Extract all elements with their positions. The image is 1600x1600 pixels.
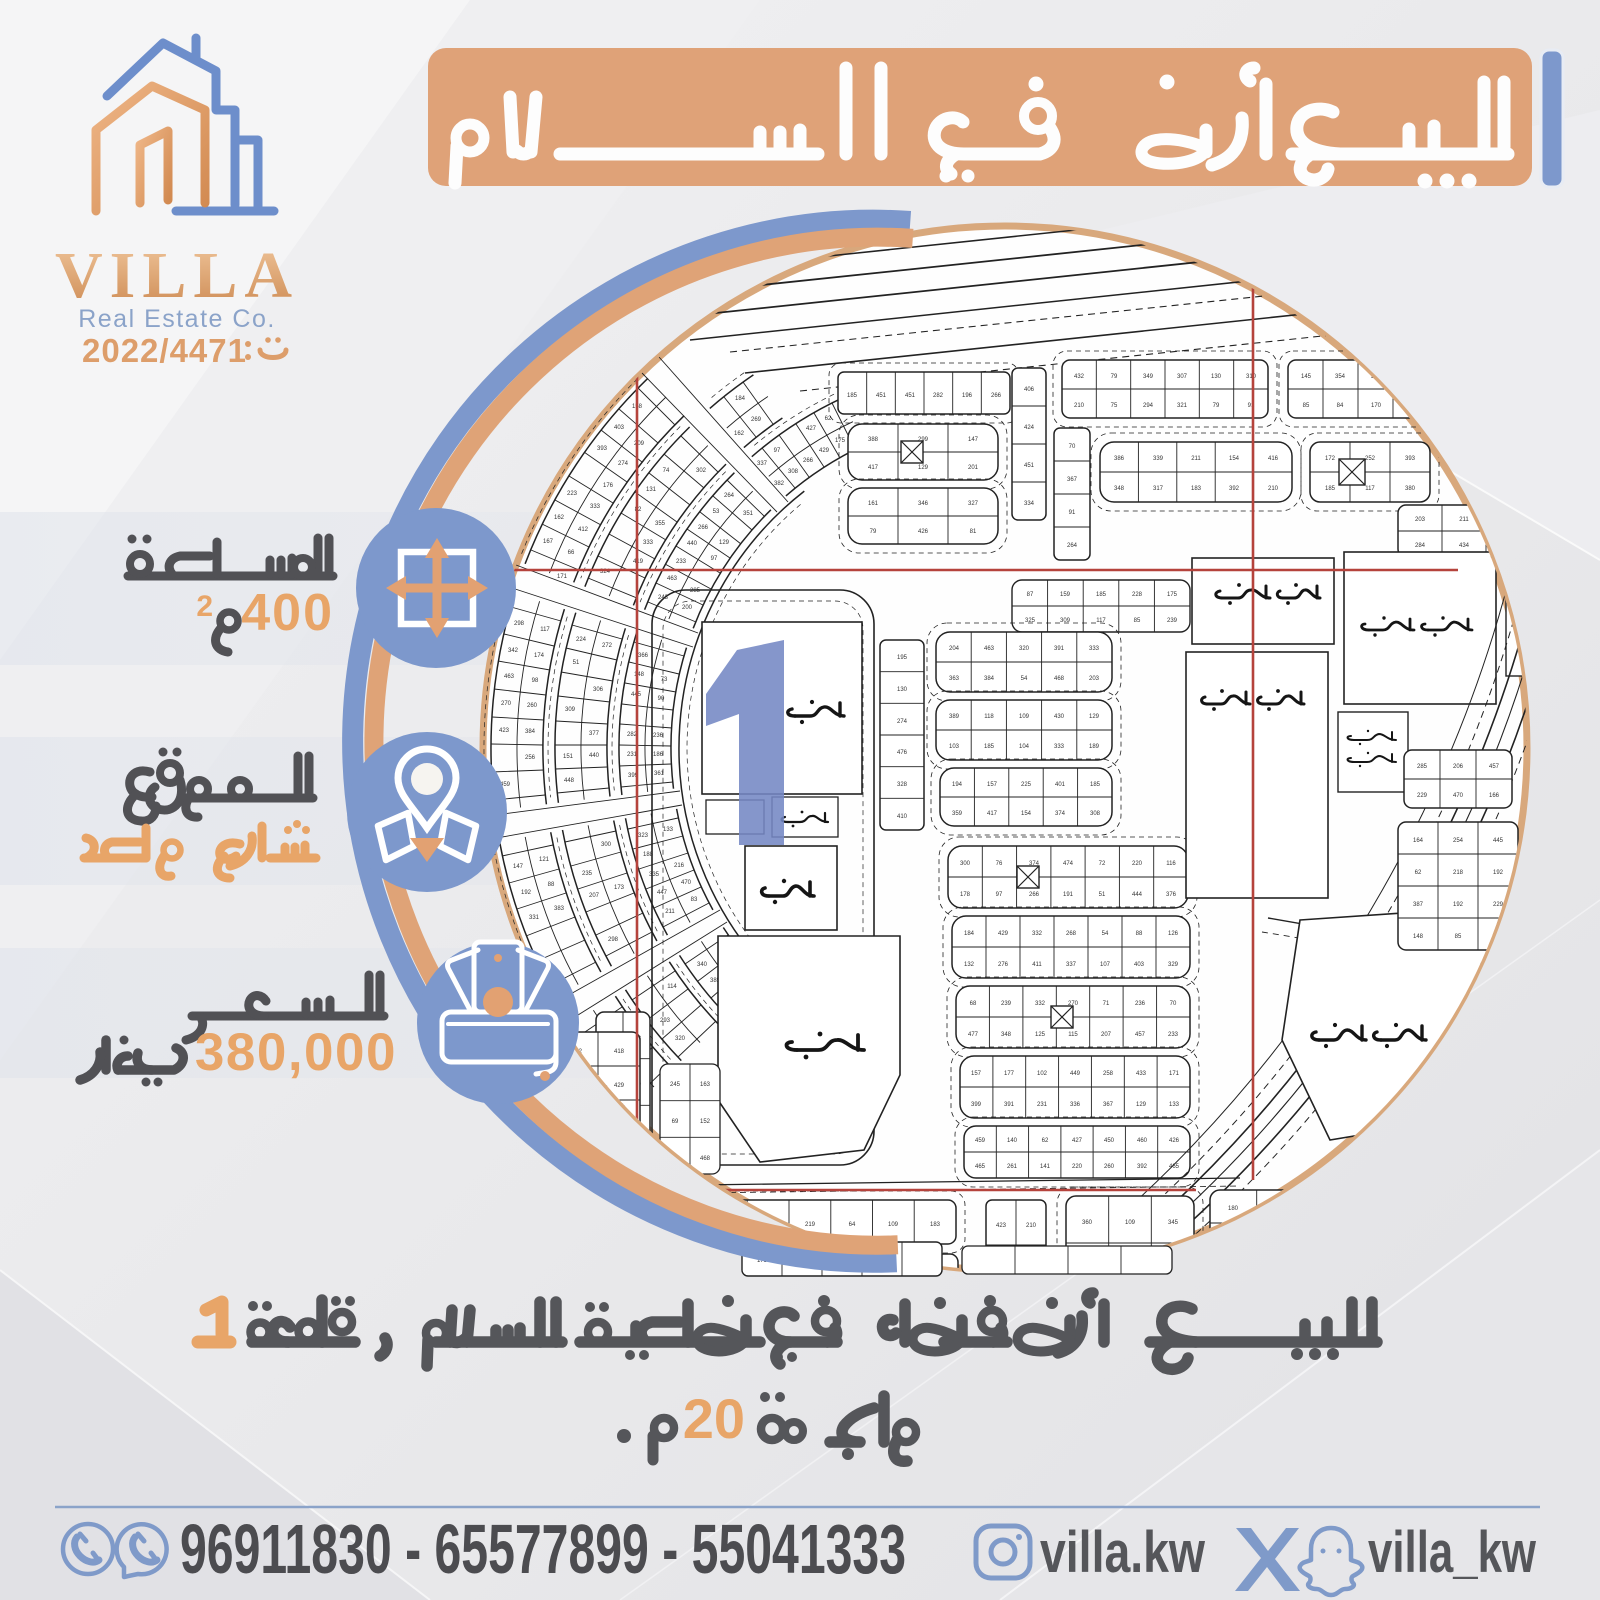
svg-text:423: 423 [499, 728, 510, 734]
svg-text:68: 68 [970, 1001, 977, 1007]
svg-text:235: 235 [582, 871, 593, 877]
svg-text:393: 393 [1405, 456, 1416, 462]
svg-text:218: 218 [1453, 870, 1464, 876]
svg-text:298: 298 [514, 621, 525, 627]
svg-text:225: 225 [1021, 782, 1032, 788]
svg-text:Real Estate Co.: Real Estate Co. [78, 305, 276, 333]
svg-text:256: 256 [525, 755, 536, 761]
svg-text:427: 427 [806, 426, 817, 432]
svg-text:307: 307 [1177, 374, 1188, 380]
svg-text:333: 333 [590, 504, 601, 510]
svg-text:387: 387 [1413, 902, 1424, 908]
svg-text:239: 239 [1001, 1001, 1012, 1007]
svg-text:411: 411 [1032, 962, 1042, 968]
svg-text:170: 170 [1371, 403, 1382, 409]
svg-text:332: 332 [1035, 1001, 1046, 1007]
svg-text:306: 306 [593, 687, 604, 693]
svg-text:426: 426 [1169, 1138, 1180, 1144]
svg-text:308: 308 [1090, 811, 1101, 817]
svg-text:192: 192 [1493, 870, 1504, 876]
svg-text:328: 328 [897, 782, 908, 788]
svg-text:419: 419 [633, 559, 644, 565]
svg-text:97: 97 [996, 892, 1003, 898]
svg-text:184: 184 [964, 931, 975, 937]
svg-text:186: 186 [653, 752, 664, 758]
svg-text:129: 129 [1136, 1102, 1147, 1108]
svg-text:210: 210 [1074, 403, 1085, 409]
svg-text:293: 293 [660, 1018, 671, 1024]
svg-text:236: 236 [653, 733, 664, 739]
svg-text:333: 333 [643, 540, 654, 546]
svg-text:274: 274 [897, 719, 908, 725]
svg-text:354: 354 [1335, 374, 1346, 380]
svg-text:470: 470 [1453, 793, 1464, 799]
svg-text:445: 445 [1493, 838, 1504, 844]
svg-text:383: 383 [554, 906, 565, 912]
svg-text:403: 403 [1134, 962, 1145, 968]
svg-text:VILLA: VILLA [55, 239, 299, 312]
svg-text:176: 176 [603, 483, 614, 489]
svg-text:194: 194 [952, 782, 963, 788]
svg-text:210: 210 [1026, 1223, 1037, 1229]
svg-text:96911830 - 65577899 - 55041333: 96911830 - 65577899 - 55041333 [180, 1510, 906, 1588]
svg-text:162: 162 [554, 515, 565, 521]
svg-text:460: 460 [1137, 1138, 1148, 1144]
svg-text:98: 98 [532, 678, 539, 684]
svg-text:196: 196 [962, 393, 973, 399]
svg-text:109: 109 [1125, 1220, 1136, 1226]
svg-text:339: 339 [1153, 456, 1164, 462]
svg-text:274: 274 [618, 461, 629, 467]
svg-text:239: 239 [1167, 618, 1178, 624]
svg-text:457: 457 [1489, 764, 1500, 770]
svg-text:266: 266 [803, 458, 814, 464]
svg-text:429: 429 [998, 931, 1009, 937]
svg-text:183: 183 [1191, 486, 1202, 492]
svg-text:51: 51 [1099, 892, 1106, 898]
svg-text:285: 285 [1417, 764, 1428, 770]
svg-text:233: 233 [1168, 1032, 1179, 1038]
svg-text:70: 70 [1069, 444, 1076, 450]
svg-text:219: 219 [805, 1222, 816, 1228]
svg-text:75: 75 [1111, 403, 1118, 409]
svg-text:148: 148 [634, 672, 645, 678]
svg-text:180: 180 [1228, 1206, 1239, 1212]
svg-text:200: 200 [682, 605, 693, 611]
svg-text:266: 266 [698, 525, 709, 531]
svg-text:203: 203 [1415, 517, 1426, 523]
svg-text:201: 201 [968, 465, 979, 471]
svg-text:294: 294 [1143, 403, 1154, 409]
svg-text:192: 192 [521, 890, 532, 896]
svg-text:380: 380 [1405, 486, 1416, 492]
svg-text:211: 211 [1191, 456, 1201, 462]
svg-text:391: 391 [1054, 646, 1065, 652]
svg-text:285: 285 [690, 588, 701, 594]
svg-text:270: 270 [501, 701, 512, 707]
svg-text:109: 109 [888, 1222, 899, 1228]
svg-text:272: 272 [602, 643, 613, 649]
svg-text:392: 392 [1137, 1164, 1148, 1170]
svg-text:351: 351 [743, 511, 754, 517]
svg-text:157: 157 [971, 1071, 982, 1077]
svg-text:463: 463 [504, 674, 515, 680]
svg-text:229: 229 [1493, 902, 1504, 908]
svg-text:118: 118 [984, 714, 994, 720]
svg-text:185: 185 [847, 393, 858, 399]
svg-text:121: 121 [539, 857, 550, 863]
svg-text:236: 236 [1135, 1001, 1146, 1007]
svg-text:359: 359 [952, 811, 963, 817]
svg-text:367: 367 [1067, 477, 1078, 483]
svg-text:164: 164 [1413, 838, 1424, 844]
svg-text:178: 178 [960, 892, 971, 898]
svg-text:207: 207 [1101, 1032, 1112, 1038]
svg-text:417: 417 [868, 465, 879, 471]
svg-text:102: 102 [1037, 1071, 1048, 1077]
svg-text:426: 426 [918, 529, 929, 535]
svg-text:391: 391 [1004, 1102, 1015, 1108]
svg-text:175: 175 [835, 438, 846, 444]
svg-text:266: 266 [991, 393, 1002, 399]
svg-text:195: 195 [897, 655, 908, 661]
svg-text:81: 81 [970, 529, 977, 535]
svg-text:109: 109 [1019, 714, 1030, 720]
svg-text:79: 79 [1111, 374, 1118, 380]
svg-text:166: 166 [1489, 793, 1500, 799]
svg-text:432: 432 [1074, 374, 1085, 380]
svg-text:406: 406 [1024, 387, 1035, 393]
svg-text:154: 154 [1229, 456, 1240, 462]
svg-text:245: 245 [670, 1082, 681, 1088]
svg-text:448: 448 [564, 778, 575, 784]
svg-text:231: 231 [1037, 1102, 1048, 1108]
svg-text:429: 429 [819, 448, 830, 454]
svg-text:villa.kw: villa.kw [1040, 1520, 1206, 1585]
svg-text:224: 224 [576, 637, 587, 643]
svg-text:400: 400 [241, 584, 334, 642]
svg-text:331: 331 [529, 915, 540, 921]
svg-text:389: 389 [949, 714, 960, 720]
svg-text:363: 363 [949, 676, 960, 682]
svg-text:104: 104 [1019, 744, 1030, 750]
svg-text:403: 403 [614, 425, 625, 431]
svg-text:300: 300 [960, 861, 971, 867]
svg-text:162: 162 [734, 431, 745, 437]
svg-text:384: 384 [525, 729, 536, 735]
svg-text:463: 463 [667, 576, 678, 582]
svg-text:116: 116 [1166, 861, 1176, 867]
svg-text:51: 51 [573, 660, 580, 666]
svg-text:203: 203 [1089, 676, 1100, 682]
svg-text:91: 91 [1069, 510, 1076, 516]
svg-text:433: 433 [1136, 1071, 1147, 1077]
svg-text:340: 340 [697, 962, 708, 968]
svg-text:85: 85 [1455, 934, 1462, 940]
svg-text:384: 384 [984, 676, 995, 682]
svg-text:207: 207 [589, 893, 600, 899]
svg-text:185: 185 [984, 744, 995, 750]
svg-text:360: 360 [1082, 1220, 1093, 1226]
svg-text:329: 329 [1168, 962, 1179, 968]
svg-text:261: 261 [1007, 1164, 1018, 1170]
svg-text:220: 220 [1132, 861, 1143, 867]
svg-text:107: 107 [1100, 962, 1111, 968]
svg-text:154: 154 [1021, 811, 1032, 817]
svg-text:133: 133 [663, 827, 674, 833]
svg-text:284: 284 [1415, 543, 1426, 549]
svg-text:447: 447 [657, 890, 668, 896]
svg-text:386: 386 [1114, 456, 1125, 462]
svg-text:167: 167 [543, 539, 554, 545]
svg-text:260: 260 [1104, 1164, 1115, 1170]
svg-text:276: 276 [998, 962, 1009, 968]
svg-text:183: 183 [930, 1222, 941, 1228]
svg-text:88: 88 [548, 882, 555, 888]
svg-text:209: 209 [634, 441, 645, 447]
svg-text:300: 300 [601, 842, 612, 848]
svg-text:332: 332 [1032, 931, 1043, 937]
svg-text:440: 440 [687, 541, 698, 547]
svg-text:320: 320 [675, 1036, 686, 1042]
svg-text:345: 345 [1168, 1220, 1179, 1226]
svg-text:434: 434 [1459, 543, 1470, 549]
svg-text:427: 427 [1072, 1138, 1083, 1144]
svg-text:412: 412 [578, 527, 589, 533]
svg-text:90: 90 [658, 696, 665, 702]
svg-text:266: 266 [1029, 892, 1040, 898]
svg-text:129: 129 [918, 465, 929, 471]
svg-text:126: 126 [1168, 931, 1179, 937]
svg-text:334: 334 [1024, 501, 1035, 507]
svg-text:380,000: 380,000 [195, 1023, 397, 1082]
svg-text:97: 97 [711, 556, 718, 562]
svg-text:463: 463 [984, 646, 995, 652]
svg-text:451: 451 [905, 393, 916, 399]
svg-text:333: 333 [1054, 744, 1065, 750]
svg-text:54: 54 [1021, 676, 1028, 682]
svg-text:71: 71 [1103, 1001, 1110, 1007]
svg-text:348: 348 [1001, 1032, 1012, 1038]
svg-text:184: 184 [735, 396, 746, 402]
svg-text:423: 423 [996, 1223, 1007, 1229]
svg-text:216: 216 [674, 863, 685, 869]
svg-text:393: 393 [597, 446, 608, 452]
svg-text:476: 476 [897, 750, 908, 756]
svg-text:114: 114 [667, 984, 677, 990]
svg-text:2022/4471: 2022/4471 [82, 332, 247, 369]
svg-text:377: 377 [589, 731, 600, 737]
svg-text:302: 302 [696, 468, 707, 474]
svg-text:151: 151 [563, 754, 574, 760]
svg-text:129: 129 [1089, 714, 1100, 720]
svg-text:309: 309 [565, 707, 576, 713]
svg-text:320: 320 [1019, 646, 1030, 652]
svg-text:349: 349 [1143, 374, 1154, 380]
svg-text:388: 388 [868, 437, 879, 443]
svg-text:125: 125 [1035, 1032, 1046, 1038]
svg-text:172: 172 [1325, 456, 1336, 462]
svg-text:233: 233 [676, 559, 687, 565]
svg-text:185: 185 [1090, 782, 1101, 788]
svg-text:88: 88 [1136, 931, 1143, 937]
svg-text:410: 410 [897, 814, 908, 820]
svg-text:115: 115 [1068, 1032, 1078, 1038]
svg-text:342: 342 [508, 648, 519, 654]
svg-text:53: 53 [713, 509, 720, 515]
svg-text:85: 85 [1303, 403, 1310, 409]
svg-text:69: 69 [672, 1119, 679, 1125]
svg-text:206: 206 [1453, 764, 1464, 770]
svg-text:210: 210 [1268, 486, 1279, 492]
svg-text:228: 228 [1132, 592, 1143, 598]
svg-text:74: 74 [663, 468, 670, 474]
svg-text:97: 97 [774, 448, 781, 454]
svg-text:220: 220 [1072, 1164, 1083, 1170]
svg-text:449: 449 [1070, 1071, 1081, 1077]
svg-text:117: 117 [1365, 486, 1375, 492]
svg-text:141: 141 [1040, 1164, 1051, 1170]
svg-text:84: 84 [1337, 403, 1344, 409]
svg-text:376: 376 [1166, 892, 1177, 898]
svg-text:132: 132 [964, 962, 975, 968]
svg-text:269: 269 [751, 417, 762, 423]
svg-text:348: 348 [1114, 486, 1125, 492]
svg-text:382: 382 [774, 481, 785, 487]
svg-text:79: 79 [1213, 403, 1220, 409]
svg-text:192: 192 [1453, 902, 1464, 908]
svg-text:337: 337 [757, 461, 768, 467]
svg-text:62: 62 [1415, 870, 1422, 876]
svg-text:429: 429 [614, 1083, 625, 1089]
svg-text:223: 223 [567, 491, 578, 497]
svg-text:254: 254 [1453, 838, 1464, 844]
svg-text:258: 258 [1103, 1071, 1114, 1077]
svg-text:147: 147 [968, 437, 979, 443]
svg-text:451: 451 [1024, 463, 1035, 469]
svg-text:321: 321 [1177, 403, 1188, 409]
svg-text:336: 336 [1070, 1102, 1081, 1108]
svg-text:129: 129 [719, 540, 730, 546]
svg-text:191: 191 [1063, 892, 1074, 898]
svg-text:260: 260 [527, 703, 538, 709]
svg-text:418: 418 [614, 1049, 625, 1055]
svg-text:310: 310 [1246, 374, 1257, 380]
svg-text:211: 211 [1459, 517, 1469, 523]
svg-text:117: 117 [540, 627, 550, 633]
svg-text:317: 317 [1153, 486, 1164, 492]
svg-text:474: 474 [1063, 861, 1074, 867]
svg-text:468: 468 [1054, 676, 1065, 682]
svg-text:335: 335 [649, 872, 660, 878]
svg-text:401: 401 [1055, 782, 1066, 788]
svg-text:392: 392 [1229, 486, 1240, 492]
svg-text:451: 451 [876, 393, 887, 399]
svg-text:465: 465 [975, 1164, 986, 1170]
svg-text:450: 450 [1104, 1138, 1115, 1144]
svg-text:264: 264 [1067, 543, 1078, 549]
svg-text:159: 159 [1060, 592, 1071, 598]
svg-text:130: 130 [1211, 374, 1222, 380]
svg-text:171: 171 [557, 574, 568, 580]
svg-text:374: 374 [1055, 811, 1066, 817]
svg-text:189: 189 [1089, 744, 1100, 750]
svg-text:355: 355 [655, 521, 666, 527]
svg-text:villa_kw: villa_kw [1368, 1520, 1537, 1585]
svg-text:87: 87 [1027, 592, 1034, 598]
svg-text:103: 103 [949, 744, 960, 750]
svg-text:416: 416 [1268, 456, 1279, 462]
svg-text:64: 64 [849, 1222, 856, 1228]
svg-text:468: 468 [700, 1156, 711, 1162]
svg-text:73: 73 [661, 677, 668, 683]
svg-text:145: 145 [1301, 374, 1312, 380]
svg-text:298: 298 [608, 937, 619, 943]
svg-text:147: 147 [513, 864, 524, 870]
svg-text:70: 70 [1170, 1001, 1177, 1007]
svg-text:264: 264 [724, 493, 735, 499]
svg-text:399: 399 [971, 1102, 982, 1108]
svg-text:72: 72 [1099, 861, 1106, 867]
svg-text:85: 85 [1134, 618, 1141, 624]
svg-text:76: 76 [996, 861, 1003, 867]
svg-text:424: 424 [1024, 425, 1035, 431]
svg-text:282: 282 [933, 393, 944, 399]
svg-text:477: 477 [968, 1032, 979, 1038]
svg-text:161: 161 [868, 501, 879, 507]
svg-text:457: 457 [1135, 1032, 1146, 1038]
svg-text:323: 323 [638, 833, 649, 839]
svg-text:444: 444 [1132, 892, 1143, 898]
svg-text:173: 173 [614, 885, 625, 891]
svg-text:204: 204 [949, 646, 960, 652]
svg-text:470: 470 [681, 880, 692, 886]
svg-text:177: 177 [1004, 1071, 1015, 1077]
svg-text:185: 185 [1096, 592, 1107, 598]
svg-text:66: 66 [568, 550, 575, 556]
svg-text:430: 430 [1054, 714, 1065, 720]
svg-text:268: 268 [1066, 931, 1077, 937]
svg-text:459: 459 [975, 1138, 986, 1144]
svg-text:152: 152 [700, 1119, 711, 1125]
svg-text:337: 337 [1066, 962, 1077, 968]
svg-text:175: 175 [1167, 592, 1178, 598]
svg-text:417: 417 [987, 811, 998, 817]
svg-text:327: 327 [968, 501, 979, 507]
svg-text:333: 333 [1089, 646, 1100, 652]
svg-text:157: 157 [987, 782, 998, 788]
svg-text:130: 130 [897, 687, 908, 693]
svg-text:54: 54 [1102, 931, 1109, 937]
svg-text:140: 140 [1007, 1138, 1018, 1144]
svg-text:308: 308 [788, 469, 799, 475]
svg-text:346: 346 [918, 501, 929, 507]
svg-text:20: 20 [683, 1387, 745, 1450]
svg-text:163: 163 [700, 1082, 711, 1088]
svg-text:229: 229 [1417, 793, 1428, 799]
svg-text:148: 148 [1413, 934, 1424, 940]
svg-text:211: 211 [665, 909, 675, 915]
svg-text:131: 131 [646, 487, 657, 493]
svg-text:62: 62 [1042, 1138, 1049, 1144]
svg-text:133: 133 [1169, 1102, 1180, 1108]
svg-text:440: 440 [589, 753, 600, 759]
svg-text:79: 79 [870, 529, 877, 535]
svg-text:171: 171 [1169, 1071, 1180, 1077]
svg-text:2: 2 [196, 590, 213, 623]
svg-text:252: 252 [1365, 456, 1376, 462]
svg-text:83: 83 [691, 897, 698, 903]
